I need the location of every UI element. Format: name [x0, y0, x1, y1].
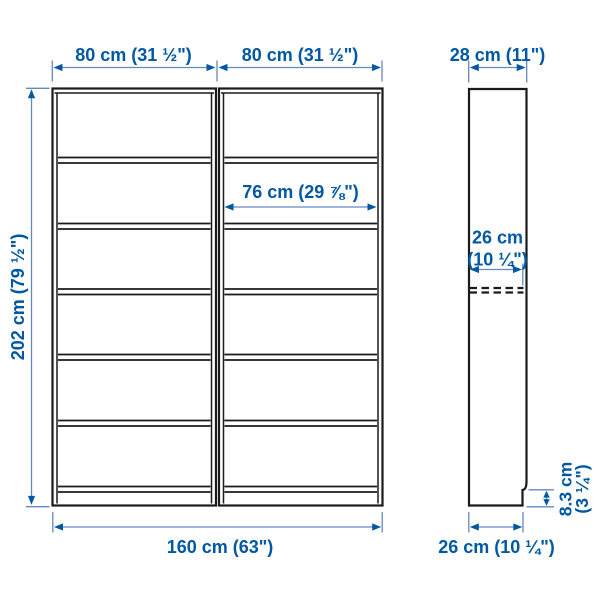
dimension-unit-width-right: 80 cm (31 ½") [219, 45, 383, 82]
arrowhead [372, 523, 381, 530]
arrowhead [219, 64, 228, 71]
arrowhead [28, 496, 35, 505]
arrowhead [513, 523, 522, 530]
dimension-top-depth: 28 cm (11") [450, 45, 546, 83]
dim-inner-width-label: 76 cm (29 ⅞") [242, 182, 359, 202]
arrowhead [207, 64, 216, 71]
dim-total-height-label: 202 cm (79 ½") [8, 234, 28, 361]
dim-total-width-label: 160 cm (63") [167, 537, 274, 557]
front-right-unit-outline [219, 89, 383, 506]
diagram-canvas: 80 cm (31 ½") 80 cm (31 ½") 28 cm (11") … [0, 0, 600, 600]
arrowhead [543, 499, 549, 506]
dim-unit-width-left-label: 80 cm (31 ½") [75, 45, 192, 65]
arrowhead [54, 523, 63, 530]
arrowhead [54, 64, 63, 71]
dimension-total-height: 202 cm (79 ½") [8, 88, 50, 506]
dim-shelf-depth-label-line2: (10 ¼") [467, 250, 528, 270]
front-left-unit-outline [53, 89, 217, 506]
side-panel-outline [469, 89, 527, 506]
dim-top-depth-label: 28 cm (11") [450, 45, 546, 65]
dim-plinth-height-label-line2: (3 ¼") [572, 464, 592, 513]
bookcase-front-view [53, 89, 383, 506]
arrowhead [28, 89, 35, 98]
dim-unit-width-right-label: 80 cm (31 ½") [242, 45, 359, 65]
arrowhead [372, 64, 381, 71]
dimension-line [527, 490, 555, 507]
dim-shelf-depth-label-line1: 26 cm [472, 228, 523, 248]
dimension-line [53, 512, 382, 533]
dimension-plinth-height: 8.3 cm (3 ¼") [527, 462, 593, 516]
dimension-line [26, 88, 50, 506]
dim-bottom-depth-label: 26 cm (10 ¼") [438, 537, 555, 557]
bookcase-side-view [469, 89, 527, 506]
arrowhead [470, 523, 479, 530]
dimension-diagram: 80 cm (31 ½") 80 cm (31 ½") 28 cm (11") … [0, 0, 600, 600]
dimension-total-width: 160 cm (63") [53, 512, 382, 557]
dimension-bottom-depth: 26 cm (10 ¼") [438, 512, 555, 557]
arrowhead [543, 491, 549, 498]
dimension-unit-width-left: 80 cm (31 ½") [52, 45, 217, 82]
